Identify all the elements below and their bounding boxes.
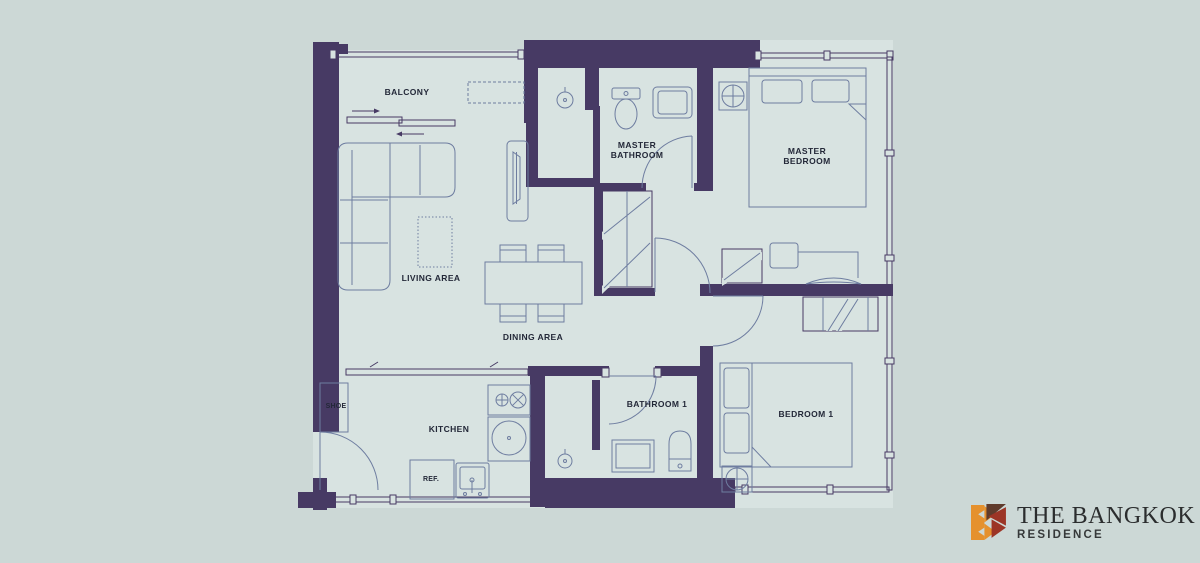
- dining-table: [485, 262, 582, 304]
- room-label-bedroom-1: BEDROOM 1: [778, 409, 833, 419]
- room-label-shoe: SHOE: [326, 402, 347, 412]
- room-label-line: MASTER: [611, 140, 664, 150]
- room-label-balcony: BALCONY: [385, 87, 430, 97]
- room-label-bathroom-1: BATHROOM 1: [627, 399, 688, 409]
- room-label-line: BEDROOM: [783, 156, 830, 166]
- floorplan-page: BALCONY MASTER BATHROOM MASTER BEDROOM L…: [0, 0, 1200, 563]
- room-label-living-area: LIVING AREA: [402, 273, 461, 283]
- room-label-line: MASTER: [783, 146, 830, 156]
- room-label-kitchen: KITCHEN: [429, 424, 470, 434]
- room-label-master-bedroom: MASTER BEDROOM: [783, 146, 830, 166]
- room-label-master-bathroom: MASTER BATHROOM: [611, 140, 664, 160]
- brand-logo-mark-icon: [971, 504, 1008, 541]
- room-label-dining-area: DINING AREA: [503, 332, 563, 342]
- brand-subtitle: RESIDENCE: [1017, 529, 1195, 541]
- brand-name: THE BANGKOK: [1017, 504, 1195, 528]
- floorplan-drawing: [0, 0, 1200, 563]
- room-label-line: BATHROOM: [611, 150, 664, 160]
- brand-logo: THE BANGKOK RESIDENCE: [971, 504, 1195, 541]
- room-label-ref: REF.: [423, 475, 439, 485]
